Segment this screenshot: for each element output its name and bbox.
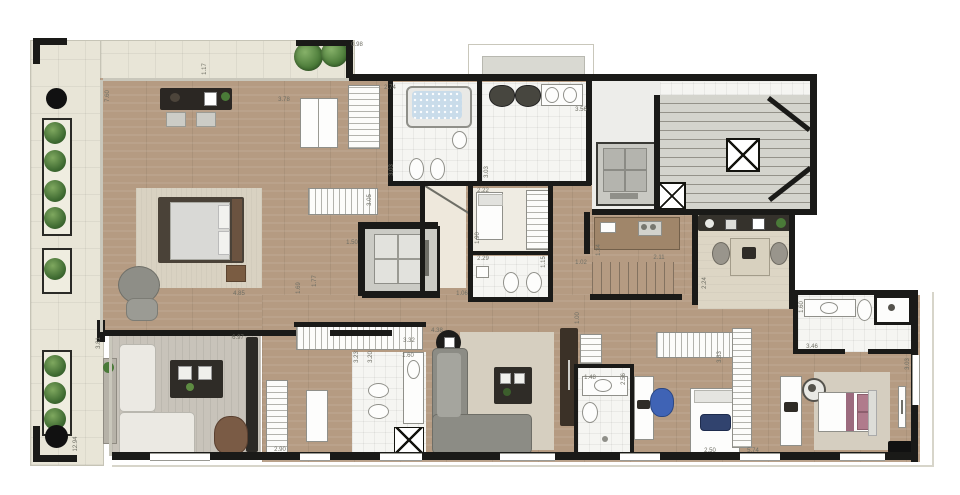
dimension-label: 3.03	[389, 164, 395, 176]
dimension-label: 3.81	[96, 337, 102, 349]
dimension-label: 1.17	[202, 63, 208, 75]
dimension-label: 4.85	[233, 291, 245, 297]
dimension-label: 1.00	[575, 312, 581, 324]
dimension-label: 2.90	[274, 447, 286, 453]
dimension-label: 1.34	[596, 244, 602, 256]
dimension-layer: 0.981.177.603.782.743.033.563.033.052.22…	[0, 0, 960, 495]
dimension-label: 1.90	[475, 232, 481, 244]
dimension-label: 3.78	[278, 97, 290, 103]
dimension-label: 4.38	[431, 328, 443, 334]
dimension-label: 2.29	[477, 256, 489, 262]
dimension-label: 1.48	[584, 375, 596, 381]
dimension-label: 6.97	[232, 335, 244, 341]
dimension-label: 7.60	[105, 90, 111, 102]
dimension-label: 1.15	[541, 256, 547, 268]
dimension-label: 2.22	[477, 188, 489, 194]
dimension-label: 1.50	[346, 240, 358, 246]
dimension-label: 5.74	[747, 448, 759, 454]
dimension-label: 3.05	[367, 194, 373, 206]
dimension-label: 2.74	[384, 85, 396, 91]
dimension-label: 0.98	[351, 42, 363, 48]
dimension-label: 2.56	[621, 373, 627, 385]
dimension-label: 1.02	[575, 260, 587, 266]
dimension-label: 3.32	[403, 338, 415, 344]
dimension-label: 3.23	[354, 351, 360, 363]
dimension-label: 1.60	[402, 353, 414, 359]
dimension-label: 2.24	[702, 277, 708, 289]
dimension-label: 1.60	[799, 301, 805, 313]
dimension-label: 1.69	[296, 282, 302, 294]
dimension-label: 3.03	[905, 358, 911, 370]
dimension-label: 3.56	[575, 107, 587, 113]
dimension-label: 1.06	[456, 291, 468, 297]
dimension-label: 3.46	[806, 344, 818, 350]
dimension-label: 3.83	[717, 351, 723, 363]
floor-plan: 0.981.177.603.782.743.033.563.033.052.22…	[0, 0, 960, 495]
dimension-label: 3.03	[484, 166, 490, 178]
dimension-label: 2.11	[653, 255, 664, 261]
dimension-label: 12.94	[73, 436, 79, 451]
dimension-label: 1.77	[312, 275, 318, 287]
dimension-label: 3.20	[368, 351, 374, 363]
dimension-label: 2.50	[704, 448, 716, 454]
